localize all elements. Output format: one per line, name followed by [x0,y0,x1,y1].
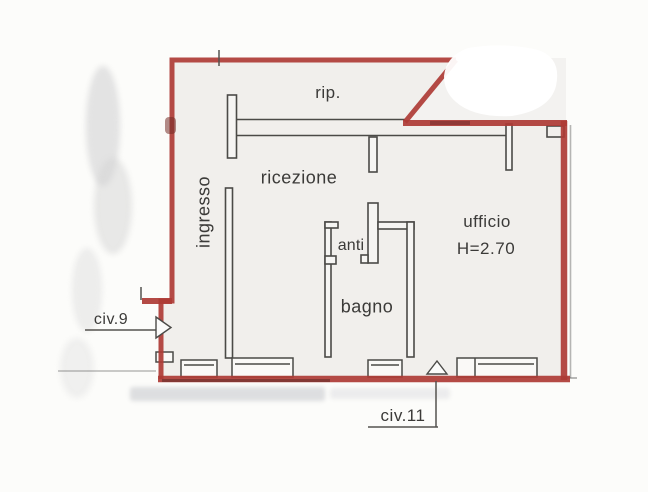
label-rip: rip. [315,83,341,103]
label-civ9: civ.9 [94,311,128,329]
label-ricezione: ricezione [261,168,338,189]
label-ufficio-height: H=2.70 [457,239,515,259]
floorplan-scan-page: rip. ricezione ingresso anti bagno uffic… [0,0,648,492]
floorplan-drawing [0,0,648,492]
label-civ11: civ.11 [381,406,426,426]
label-ufficio: ufficio [463,212,511,232]
white-erasure-blob [444,45,557,116]
label-ingresso: ingresso [194,176,215,248]
label-bagno: bagno [341,297,394,318]
label-anti: anti [338,237,365,255]
